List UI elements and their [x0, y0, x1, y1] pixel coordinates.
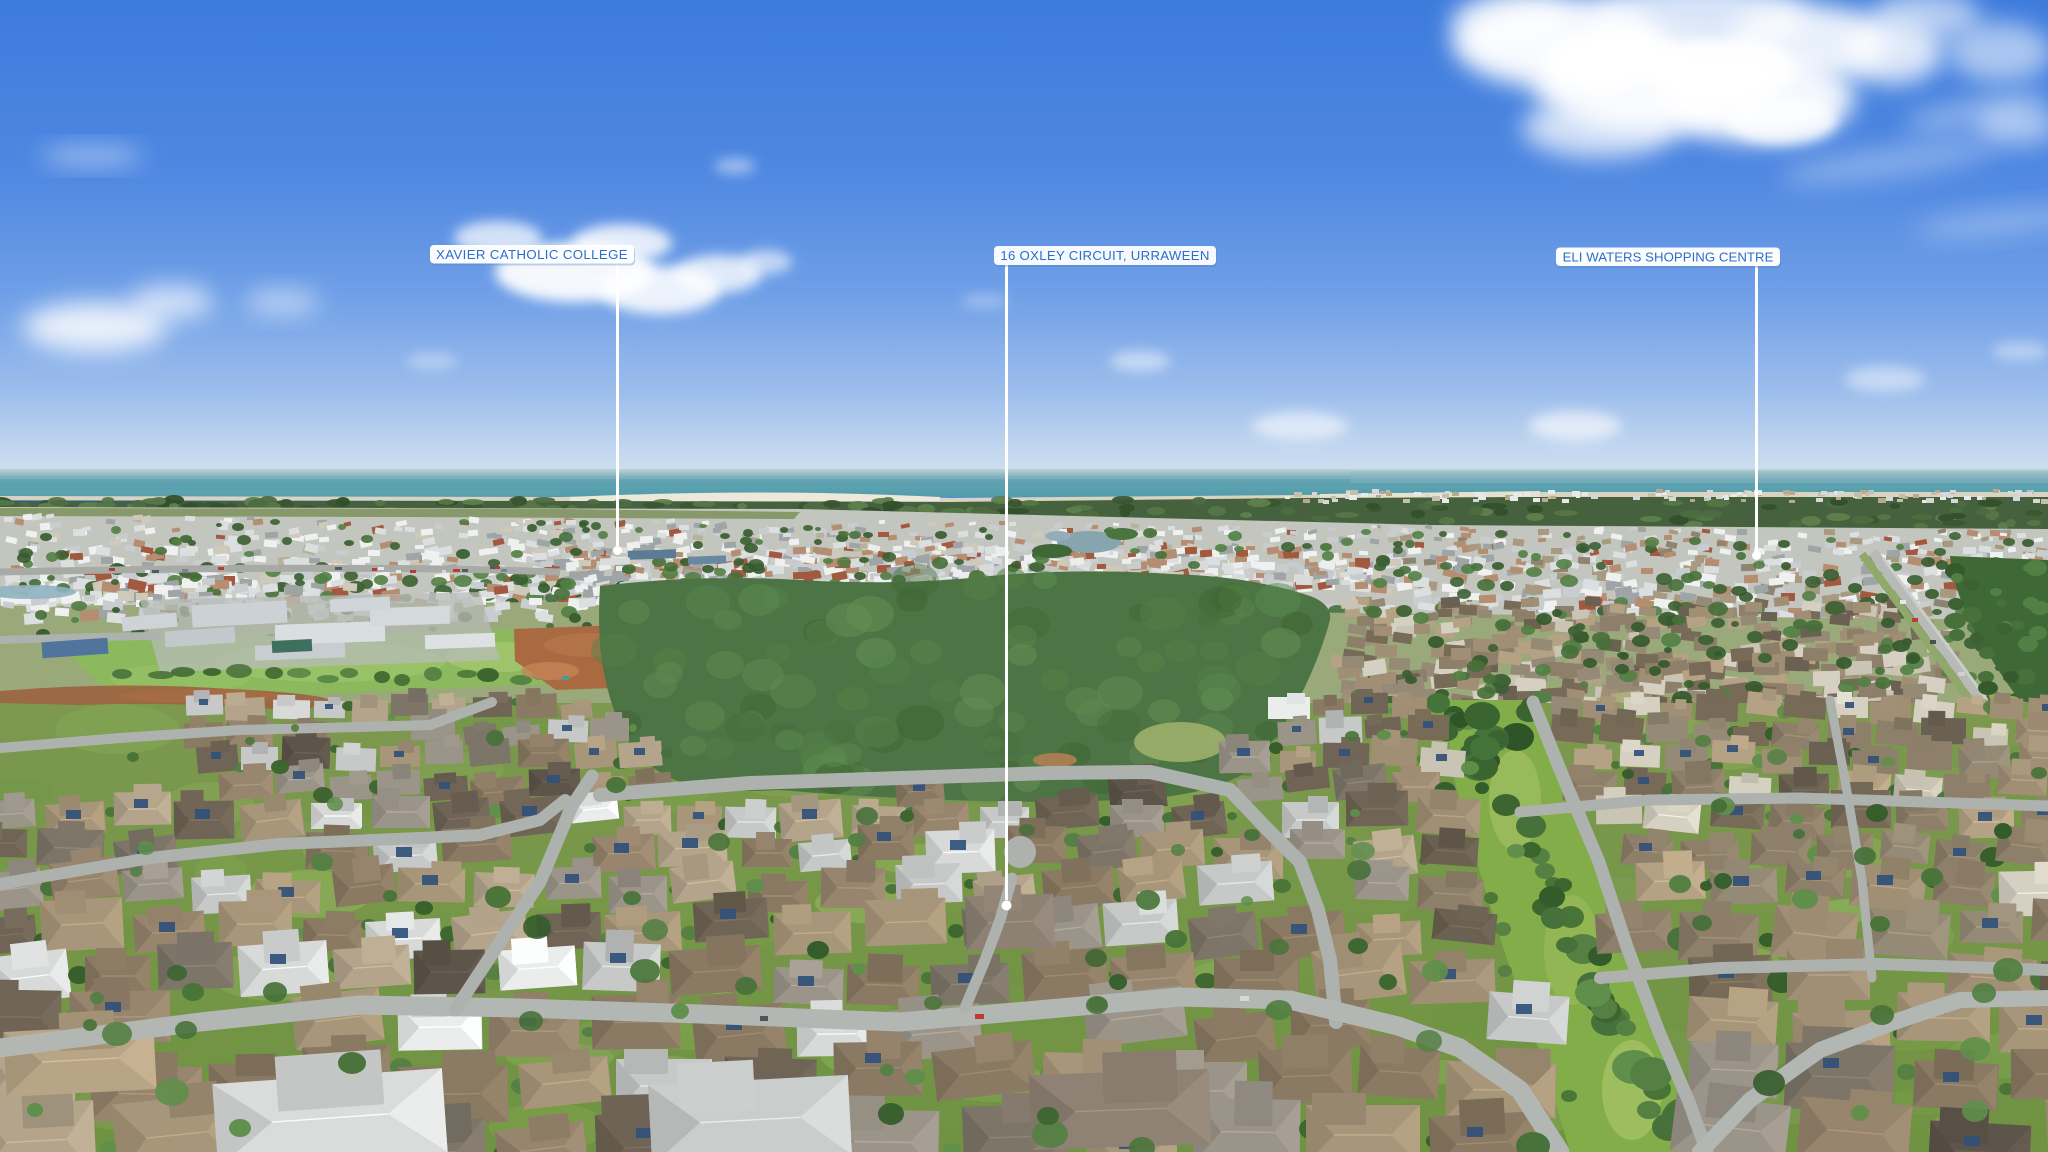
svg-text:XAVIER CATHOLIC COLLEGE: XAVIER CATHOLIC COLLEGE [436, 247, 628, 262]
svg-text:16 OXLEY CIRCUIT, URRAWEEN: 16 OXLEY CIRCUIT, URRAWEEN [1000, 248, 1209, 263]
svg-text:ELI WATERS SHOPPING CENTRE: ELI WATERS SHOPPING CENTRE [1563, 250, 1774, 265]
